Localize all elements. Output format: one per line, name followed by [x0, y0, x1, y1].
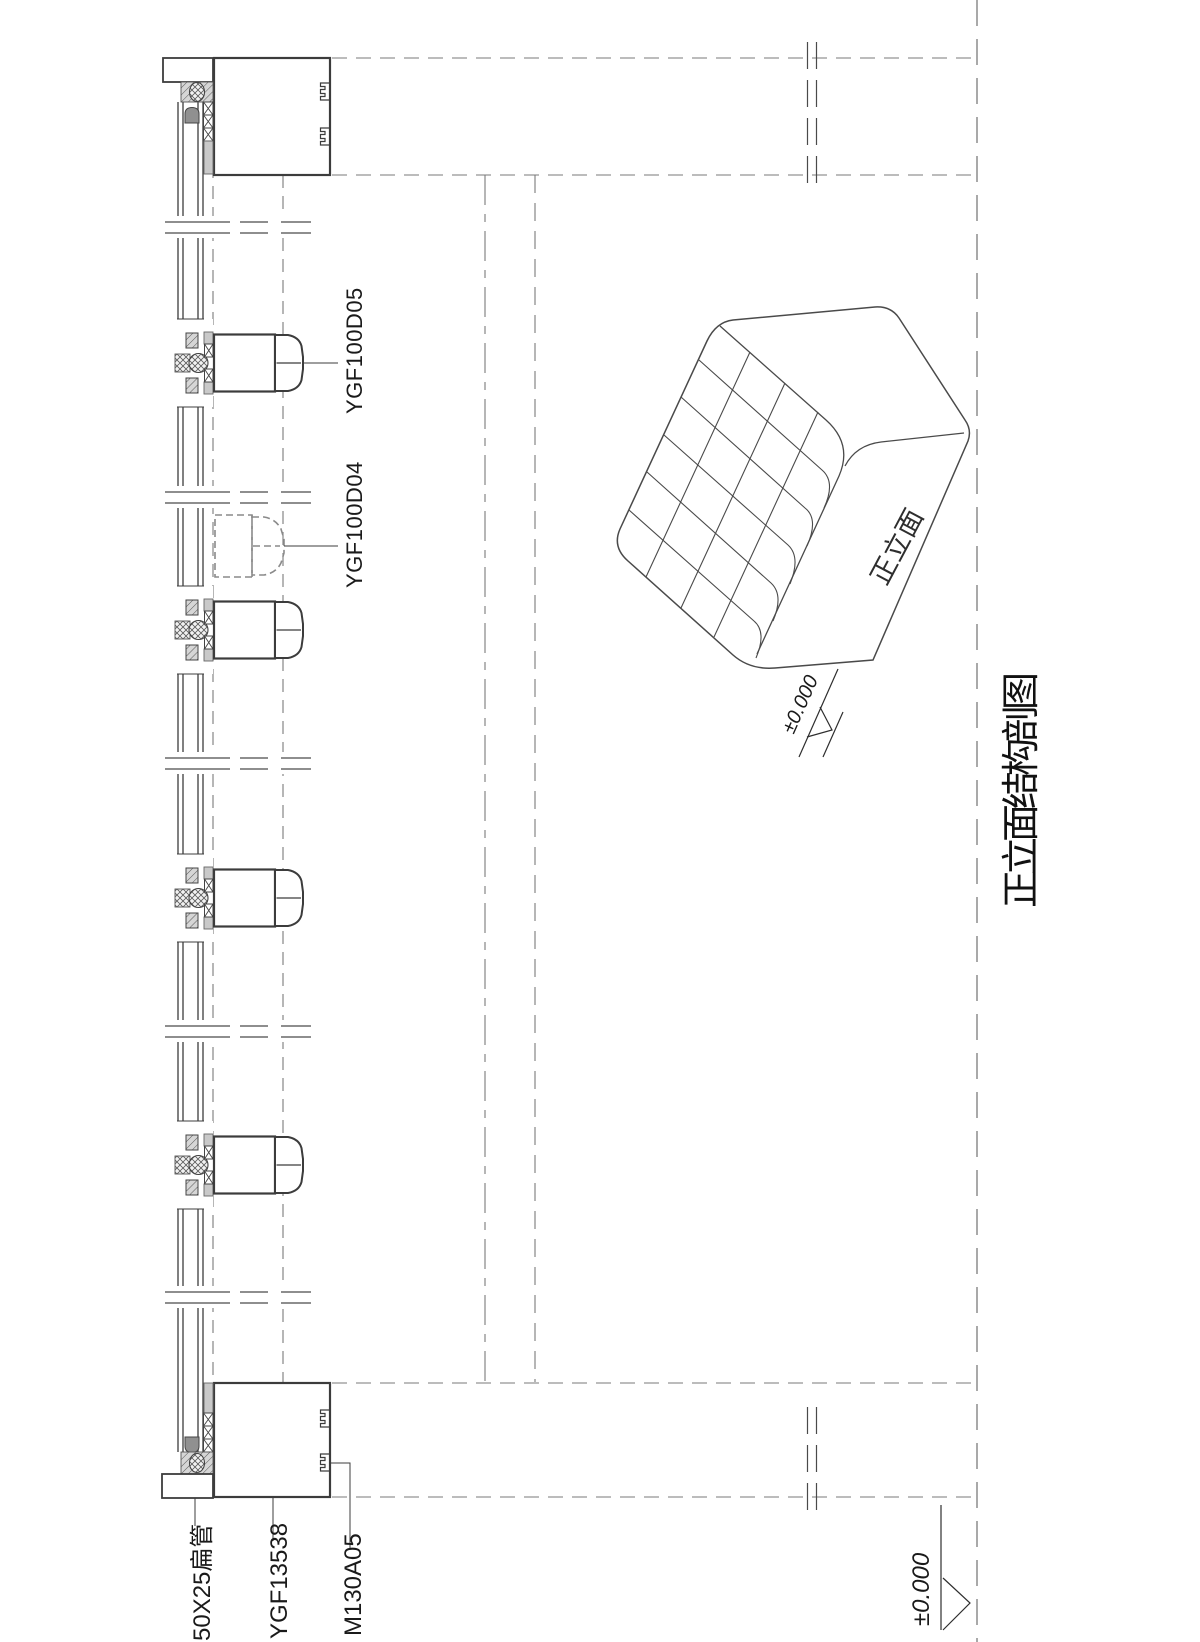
glass-edge-seal-bottom: [185, 1437, 199, 1453]
label-m130a05: M130A05: [340, 1533, 367, 1636]
break-row-1: [160, 216, 318, 238]
axo-level-value: ±0.000: [778, 672, 823, 737]
block-crease-top: [845, 433, 964, 466]
base-level-value: ±0.000: [908, 1552, 935, 1626]
leader-lines: [195, 363, 350, 1548]
grid-face-rows: [629, 360, 830, 658]
hidden-mullion-assembly: [215, 515, 284, 577]
label-flat-tube: 50X25扁管: [189, 1524, 216, 1641]
break-row-4: [160, 1020, 318, 1042]
break-mark-bottom-right: [808, 1407, 817, 1516]
mullion-assembly-3: [171, 854, 303, 942]
break-row-3: [160, 752, 318, 774]
break-mark-top-right: [808, 42, 817, 187]
axonometric-block: [617, 307, 969, 668]
label-ygf100d05: YGF100D05: [342, 287, 367, 414]
label-ygf13538: YGF13538: [266, 1523, 293, 1639]
level-marker-base: [941, 1505, 970, 1630]
break-row-5: [160, 1286, 318, 1308]
glass-unit-lines: [178, 102, 203, 1452]
label-ygf100d04: YGF100D04: [342, 461, 367, 588]
drawing-title: 正立面结构剖图: [1001, 675, 1043, 908]
facade-section-drawing: YGF100D05 YGF100D04 50X25扁管 YGF13538 M13…: [0, 0, 1200, 1642]
block-silhouette: [617, 307, 969, 668]
cad-drawing-page: YGF100D05 YGF100D04 50X25扁管 YGF13538 M13…: [0, 0, 1200, 1642]
front-face-label: 正立面: [865, 504, 930, 590]
break-row-2: [160, 486, 318, 508]
glass-edge-seal-top: [185, 108, 199, 124]
